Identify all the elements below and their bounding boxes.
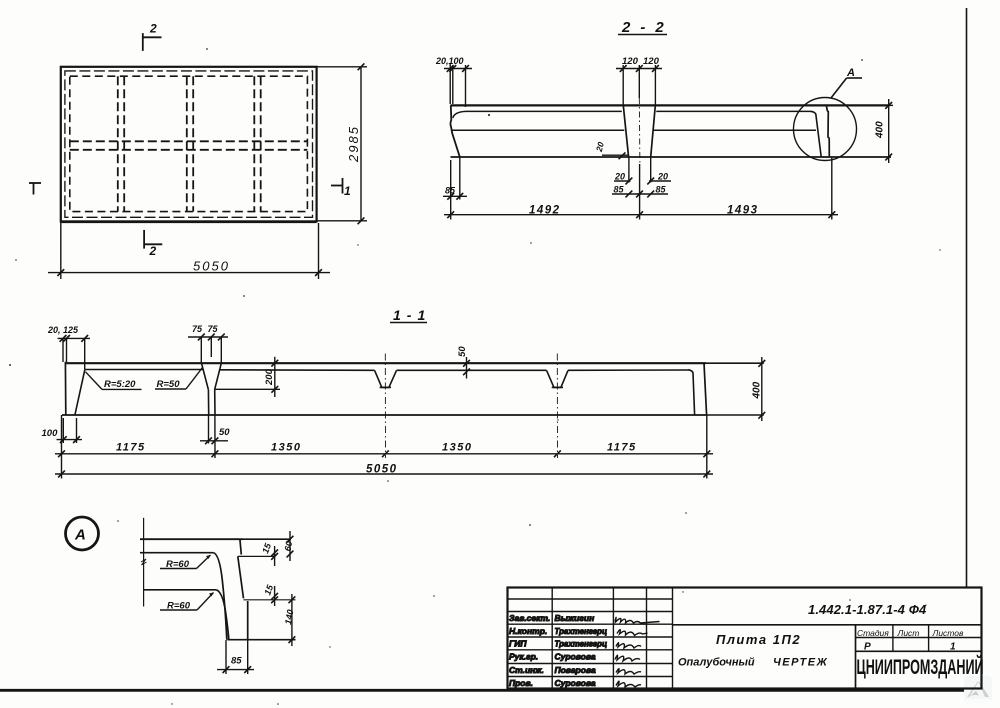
svg-text:50: 50 xyxy=(219,427,230,438)
svg-text:Трахтенгерц: Трахтенгерц xyxy=(555,639,608,648)
svg-text:1350: 1350 xyxy=(442,442,472,454)
svg-text:Поварова: Поварова xyxy=(555,665,596,675)
svg-text:120: 120 xyxy=(622,56,639,67)
svg-text:Выжигин: Выжигин xyxy=(555,613,595,623)
svg-text:Лист: Лист xyxy=(897,628,920,638)
svg-text:Н.контр.: Н.контр. xyxy=(509,626,547,636)
svg-text:5050: 5050 xyxy=(193,259,230,274)
svg-text:75: 75 xyxy=(192,324,203,334)
svg-text:А: А xyxy=(74,527,86,544)
svg-text:1175: 1175 xyxy=(116,442,146,454)
svg-text:1: 1 xyxy=(950,642,956,653)
svg-text:400: 400 xyxy=(752,381,763,399)
svg-text:R=5:20: R=5:20 xyxy=(104,379,136,390)
svg-text:15: 15 xyxy=(260,541,273,555)
svg-text:20,100: 20,100 xyxy=(435,56,464,66)
svg-text:Суровова: Суровова xyxy=(555,652,596,662)
svg-text:2: 2 xyxy=(149,22,157,36)
svg-text:ГИП: ГИП xyxy=(509,639,527,649)
svg-text:100: 100 xyxy=(42,428,59,439)
svg-text:85: 85 xyxy=(614,185,625,195)
svg-text:140: 140 xyxy=(283,609,295,626)
svg-text:2985: 2985 xyxy=(346,125,361,163)
svg-text:Опалубочный: Опалубочный xyxy=(678,657,755,669)
svg-text:400: 400 xyxy=(875,121,886,139)
svg-text:R=60: R=60 xyxy=(166,559,190,570)
svg-text:200: 200 xyxy=(264,368,275,386)
svg-text:Р: Р xyxy=(864,642,871,653)
svg-text:Пров.: Пров. xyxy=(509,678,533,688)
svg-text:R=60: R=60 xyxy=(167,601,191,612)
svg-text:2-2: 2-2 xyxy=(621,19,674,36)
svg-text:Листов: Листов xyxy=(932,628,965,638)
svg-text:15: 15 xyxy=(262,583,275,597)
svg-text:Ст.инж.: Ст.инж. xyxy=(509,665,544,675)
svg-text:1: 1 xyxy=(344,184,351,198)
svg-text:1-1: 1-1 xyxy=(393,307,431,323)
svg-text:А: А xyxy=(846,67,855,79)
svg-text:85: 85 xyxy=(231,656,242,667)
svg-text:50: 50 xyxy=(457,346,468,357)
svg-text:Зав.сект.: Зав.сект. xyxy=(509,613,550,623)
svg-text:20, 125: 20, 125 xyxy=(47,325,79,335)
svg-text:20: 20 xyxy=(594,141,606,154)
svg-text:20: 20 xyxy=(657,172,668,182)
svg-text:85: 85 xyxy=(656,185,667,195)
svg-text:75: 75 xyxy=(208,324,219,334)
svg-text:Плита 1П2: Плита 1П2 xyxy=(716,632,801,647)
svg-text:5050: 5050 xyxy=(366,464,398,476)
svg-text:Суровова: Суровова xyxy=(555,678,596,688)
svg-text:1.442.1-1.87.1-4 Ф4: 1.442.1-1.87.1-4 Ф4 xyxy=(808,602,927,617)
svg-text:R=50: R=50 xyxy=(157,379,181,390)
svg-text:1350: 1350 xyxy=(271,442,301,454)
svg-text:ЦНИИПРОМЗДАНИЙ: ЦНИИПРОМЗДАНИЙ xyxy=(857,655,984,679)
svg-text:20: 20 xyxy=(614,172,625,182)
svg-text:Стадия: Стадия xyxy=(857,628,889,638)
svg-text:1492: 1492 xyxy=(529,205,561,217)
svg-text:Рук.гр.: Рук.гр. xyxy=(509,652,538,662)
svg-text:120: 120 xyxy=(643,56,660,67)
svg-text:1175: 1175 xyxy=(607,442,637,454)
svg-text:85: 85 xyxy=(445,186,456,196)
svg-text:2: 2 xyxy=(149,244,157,258)
svg-text:60: 60 xyxy=(283,540,295,552)
svg-text:Трахтенгерц: Трахтенгерц xyxy=(555,627,608,636)
svg-text:ЧЕРТЕЖ: ЧЕРТЕЖ xyxy=(773,657,828,669)
svg-text:1493: 1493 xyxy=(727,205,759,217)
